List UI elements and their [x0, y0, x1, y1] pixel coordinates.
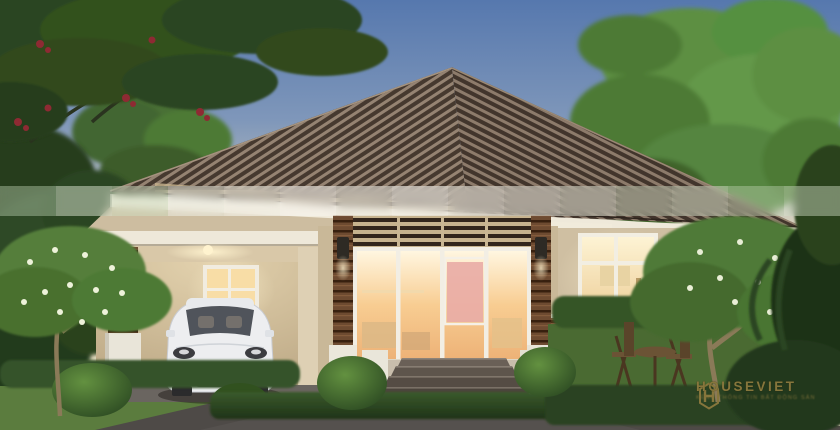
watermark-brand: HOUSEVIET — [696, 380, 816, 394]
watermark-tagline: KÊNH THÔNG TIN BẤT ĐỘNG SẢN — [696, 396, 816, 402]
hedge-row-left — [0, 360, 300, 388]
round-bush — [317, 356, 387, 410]
watermark: HOUSEVIET KÊNH THÔNG TIN BẤT ĐỘNG SẢN — [696, 380, 838, 401]
entrance-glass-doors — [353, 247, 531, 365]
round-bush — [514, 347, 576, 397]
slatted-transom — [353, 215, 531, 247]
round-bush — [52, 363, 132, 417]
car-windshield — [186, 306, 254, 336]
scene-illustration — [0, 0, 840, 430]
house-rendering-image: HOUSEVIET KÊNH THÔNG TIN BẤT ĐỘNG SẢN — [0, 0, 840, 430]
interior-pink-wall — [447, 262, 483, 322]
front-hedge-center — [210, 392, 562, 419]
white-hatchback-car — [158, 298, 282, 404]
interior-furniture — [362, 322, 398, 348]
